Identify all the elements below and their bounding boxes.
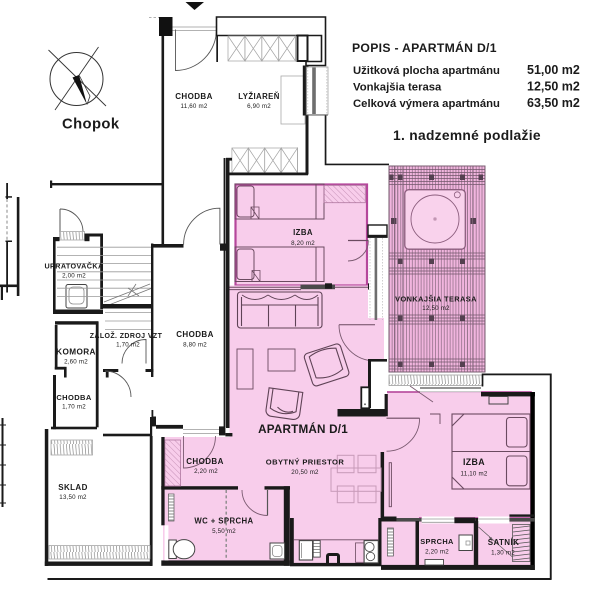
svg-text:1,70 m2: 1,70 m2 (62, 404, 86, 411)
svg-text:2,20 m2: 2,20 m2 (425, 549, 449, 556)
svg-text:1,70 m2: 1,70 m2 (116, 342, 140, 349)
svg-text:CHODBA: CHODBA (175, 92, 213, 101)
svg-text:IZBA: IZBA (463, 457, 485, 467)
svg-text:Celková výmera apartmánu: Celková výmera apartmánu (353, 98, 500, 110)
svg-text:51,00 m2: 51,00 m2 (527, 63, 580, 77)
svg-text:8,80 m2: 8,80 m2 (183, 342, 207, 349)
svg-text:POPIS - APARTMÁN D/1: POPIS - APARTMÁN D/1 (352, 40, 497, 55)
svg-text:2,20 m2: 2,20 m2 (194, 468, 218, 475)
svg-text:VONKAJŠIA TERASA: VONKAJŠIA TERASA (395, 295, 477, 304)
svg-text:CHODBA: CHODBA (186, 457, 224, 466)
svg-text:20,50 m2: 20,50 m2 (291, 469, 319, 476)
svg-text:5,50 m2: 5,50 m2 (212, 528, 236, 535)
svg-text:LYŽIAREŇ: LYŽIAREŇ (238, 92, 279, 101)
svg-text:IZBA: IZBA (293, 228, 313, 237)
svg-text:WC + SPRCHA: WC + SPRCHA (194, 517, 253, 526)
svg-text:1. nadzemné podlažie: 1. nadzemné podlažie (393, 128, 541, 143)
svg-text:SPRCHA: SPRCHA (420, 537, 454, 546)
svg-text:Chopok: Chopok (62, 117, 120, 133)
svg-text:KOMORA: KOMORA (56, 348, 96, 357)
svg-text:11,60 m2: 11,60 m2 (181, 103, 208, 110)
svg-text:UPRATOVAČKA: UPRATOVAČKA (44, 262, 103, 271)
svg-text:2,60 m2: 2,60 m2 (64, 359, 88, 366)
svg-text:CHODBA: CHODBA (56, 393, 91, 402)
svg-text:12,50 m2: 12,50 m2 (422, 305, 450, 312)
svg-text:11,10 m2: 11,10 m2 (461, 471, 488, 478)
svg-text:CHODBA: CHODBA (176, 330, 214, 339)
svg-text:2,00 m2: 2,00 m2 (62, 273, 86, 280)
svg-text:SKLAD: SKLAD (58, 483, 88, 492)
svg-text:12,50 m2: 12,50 m2 (527, 80, 580, 94)
svg-text:63,50 m2: 63,50 m2 (527, 96, 580, 110)
svg-text:13,50 m2: 13,50 m2 (59, 494, 87, 501)
svg-text:1,30 m2: 1,30 m2 (491, 550, 515, 557)
svg-text:OBYTNÝ PRIESTOR: OBYTNÝ PRIESTOR (266, 458, 345, 467)
svg-text:Užitková plocha apartmánu: Užitková plocha apartmánu (353, 65, 500, 77)
svg-text:ŠATNÍK: ŠATNÍK (488, 538, 520, 547)
svg-text:8,20 m2: 8,20 m2 (291, 240, 315, 247)
svg-text:ZÁLOŽ. ZDROJ VZT: ZÁLOŽ. ZDROJ VZT (90, 331, 163, 340)
svg-text:Vonkajšia terasa: Vonkajšia terasa (353, 82, 442, 94)
svg-text:6,90 m2: 6,90 m2 (247, 103, 271, 110)
svg-text:APARTMÁN D/1: APARTMÁN D/1 (258, 423, 348, 436)
